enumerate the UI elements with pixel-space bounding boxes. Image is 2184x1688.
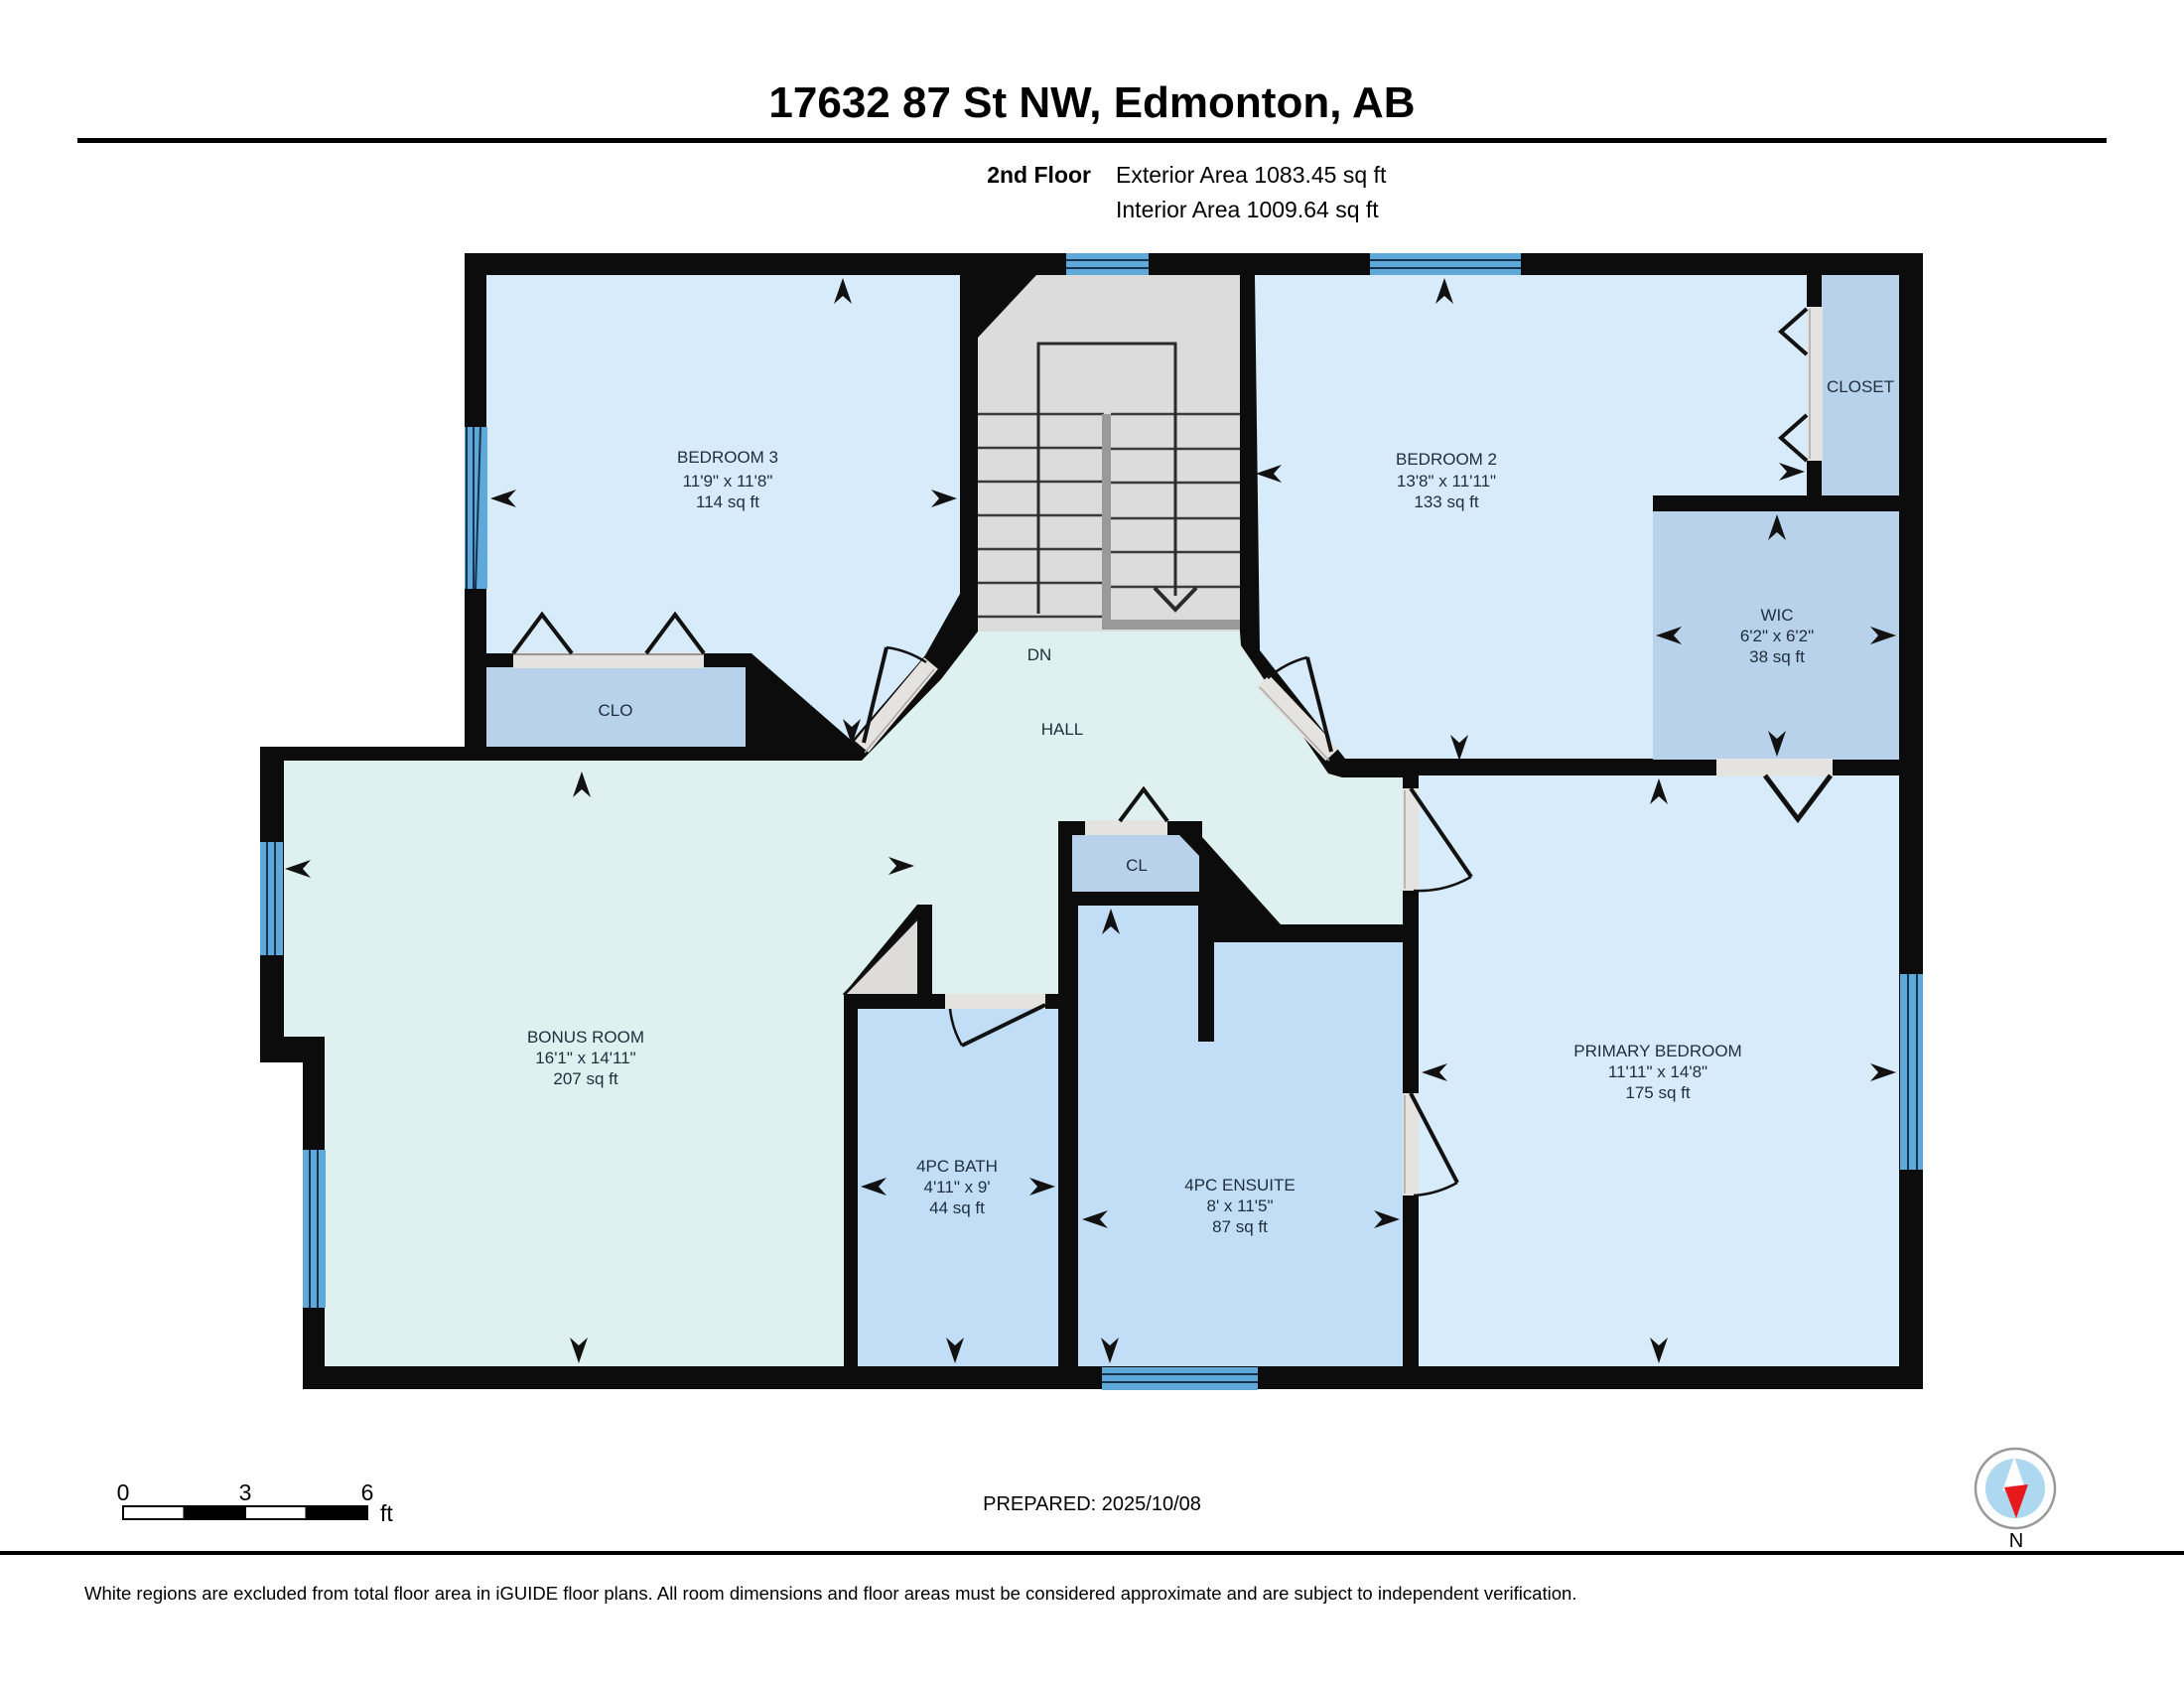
svg-text:HALL: HALL bbox=[1041, 720, 1084, 739]
svg-text:4PC BATH: 4PC BATH bbox=[916, 1157, 998, 1176]
svg-text:CL: CL bbox=[1126, 856, 1148, 875]
svg-text:16'1" x 14'11": 16'1" x 14'11" bbox=[535, 1049, 635, 1067]
svg-text:White regions are excluded fro: White regions are excluded from total fl… bbox=[84, 1583, 1576, 1604]
svg-text:3: 3 bbox=[239, 1479, 252, 1505]
svg-text:DN: DN bbox=[1027, 645, 1052, 664]
svg-text:133 sq ft: 133 sq ft bbox=[1414, 492, 1478, 511]
svg-text:2nd Floor: 2nd Floor bbox=[987, 162, 1091, 188]
svg-text:WIC: WIC bbox=[1760, 606, 1793, 625]
svg-text:Exterior Area 1083.45 sq ft: Exterior Area 1083.45 sq ft bbox=[1116, 162, 1387, 188]
svg-text:BEDROOM 3: BEDROOM 3 bbox=[677, 448, 778, 467]
svg-text:PRIMARY BEDROOM: PRIMARY BEDROOM bbox=[1573, 1042, 1741, 1060]
svg-text:38 sq ft: 38 sq ft bbox=[1749, 647, 1805, 666]
svg-text:BEDROOM 2: BEDROOM 2 bbox=[1396, 450, 1497, 469]
svg-text:PREPARED: 2025/10/08: PREPARED: 2025/10/08 bbox=[983, 1493, 1201, 1515]
svg-text:207 sq ft: 207 sq ft bbox=[553, 1069, 617, 1088]
svg-text:CLO: CLO bbox=[599, 701, 633, 720]
svg-text:11'9" x 11'8": 11'9" x 11'8" bbox=[683, 472, 773, 491]
svg-text:114 sq ft: 114 sq ft bbox=[696, 492, 759, 511]
svg-text:BONUS ROOM: BONUS ROOM bbox=[527, 1028, 644, 1047]
svg-text:4'11" x 9': 4'11" x 9' bbox=[923, 1178, 990, 1196]
svg-text:6'2" x 6'2": 6'2" x 6'2" bbox=[1740, 627, 1814, 645]
svg-text:175 sq ft: 175 sq ft bbox=[1625, 1083, 1690, 1102]
svg-text:4PC ENSUITE: 4PC ENSUITE bbox=[1184, 1176, 1295, 1195]
svg-text:11'11" x 14'8": 11'11" x 14'8" bbox=[1608, 1062, 1707, 1081]
svg-text:8' x 11'5": 8' x 11'5" bbox=[1206, 1196, 1273, 1215]
svg-text:6: 6 bbox=[361, 1479, 374, 1505]
svg-text:87 sq ft: 87 sq ft bbox=[1212, 1217, 1268, 1236]
svg-text:17632 87 St NW, Edmonton, AB: 17632 87 St NW, Edmonton, AB bbox=[768, 78, 1415, 127]
svg-text:ft: ft bbox=[380, 1500, 393, 1526]
svg-text:44 sq ft: 44 sq ft bbox=[929, 1198, 985, 1217]
svg-text:Interior Area 1009.64 sq ft: Interior Area 1009.64 sq ft bbox=[1116, 197, 1379, 222]
svg-text:13'8" x 11'11": 13'8" x 11'11" bbox=[1397, 472, 1496, 491]
svg-text:0: 0 bbox=[117, 1479, 130, 1505]
svg-text:N: N bbox=[2009, 1530, 2023, 1552]
svg-text:CLOSET: CLOSET bbox=[1827, 377, 1894, 396]
